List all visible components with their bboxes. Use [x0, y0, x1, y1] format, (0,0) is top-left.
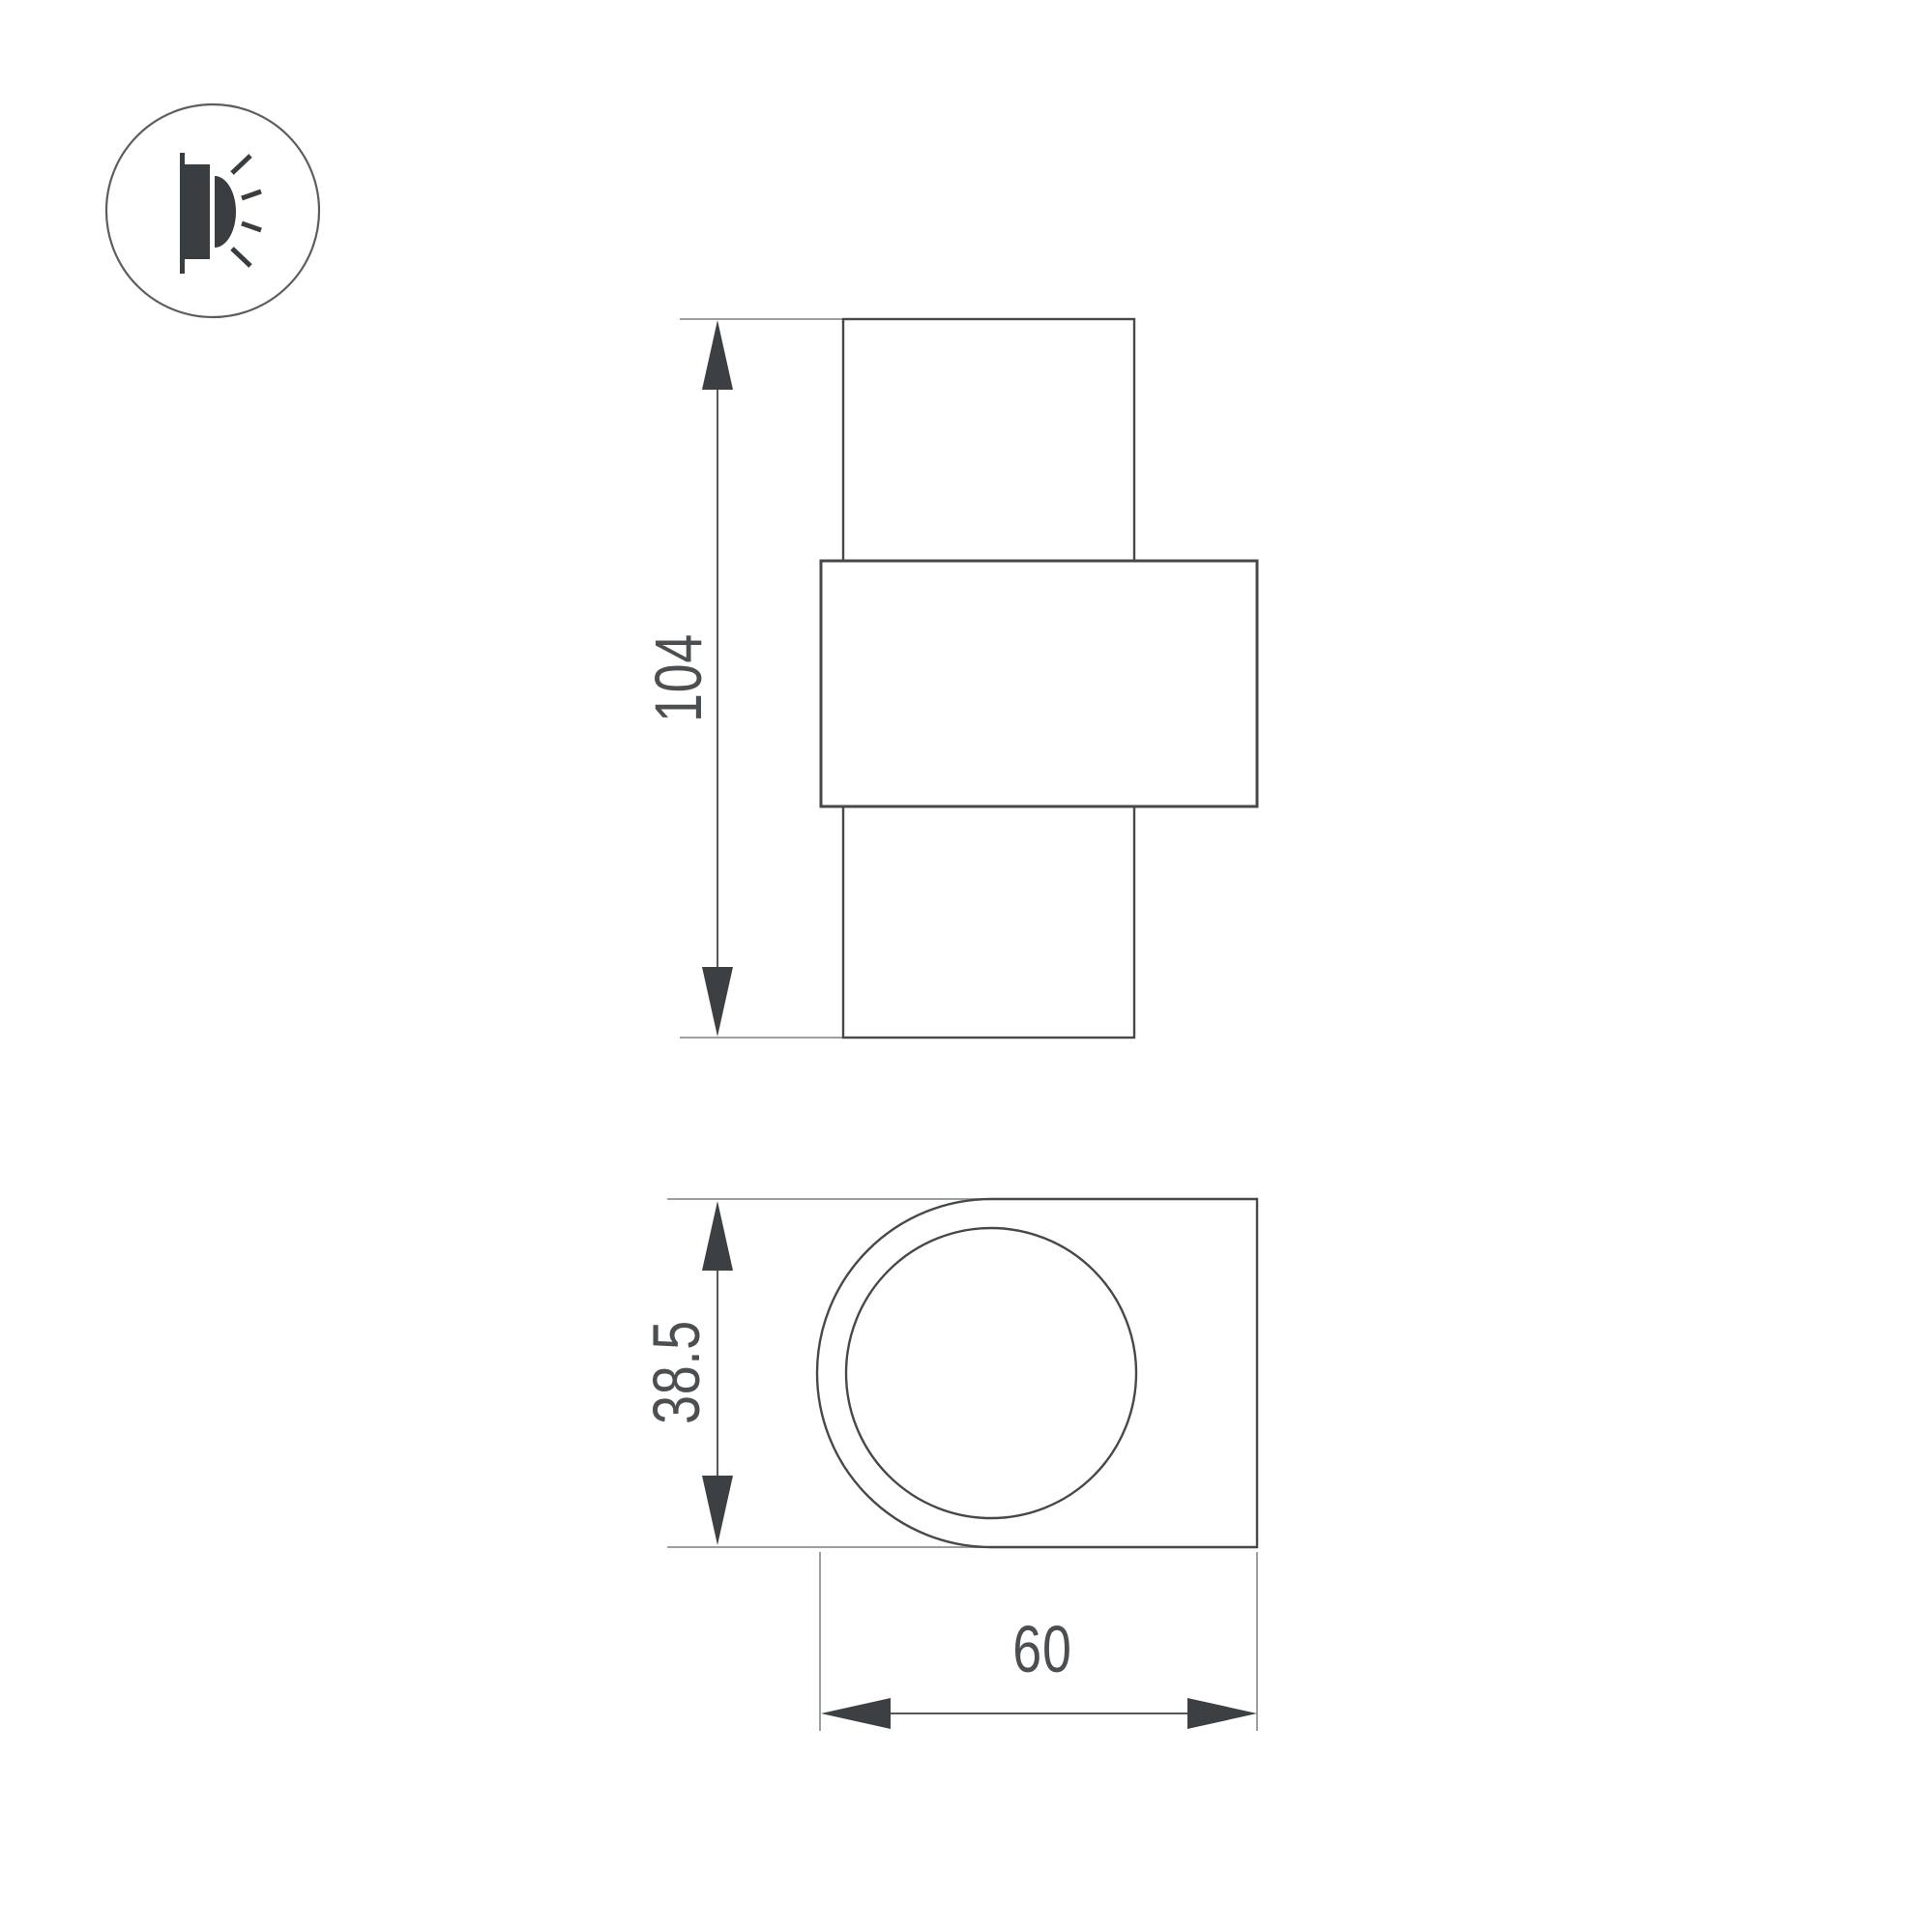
dimension-label-width: 60 — [1012, 1613, 1071, 1687]
arrowhead-up — [702, 1201, 733, 1271]
dimension-width: 60 — [821, 1613, 1257, 1729]
dimension-label-height: 104 — [642, 633, 717, 722]
icon-light-ray — [242, 191, 261, 198]
icon-lamp-dome — [215, 176, 236, 248]
icon-wall-line — [180, 153, 185, 274]
front-view: 104 — [642, 319, 1257, 1038]
arrowhead-left — [821, 1698, 891, 1729]
icon-light-ray — [232, 156, 250, 173]
icon-light-ray — [232, 249, 250, 266]
housing-outline — [817, 1199, 1257, 1547]
drawing-canvas: 104 38.5 — [0, 0, 1932, 1932]
mounting-band-outline — [821, 561, 1257, 806]
arrowhead-up — [702, 320, 733, 390]
arrowhead-down — [702, 1476, 733, 1545]
icon-lamp-body — [185, 164, 210, 259]
arrowhead-down — [702, 967, 733, 1037]
arrowhead-right — [1187, 1698, 1257, 1729]
icon-circle-outline — [106, 104, 319, 317]
technical-drawing: 104 38.5 — [0, 0, 1932, 1932]
dimension-height: 104 — [642, 320, 733, 1037]
wall-light-icon — [106, 104, 319, 317]
icon-light-ray — [242, 223, 261, 230]
dimension-depth: 38.5 — [640, 1201, 733, 1545]
dimension-label-depth: 38.5 — [640, 1320, 715, 1424]
bottom-view: 38.5 60 — [640, 1199, 1257, 1731]
